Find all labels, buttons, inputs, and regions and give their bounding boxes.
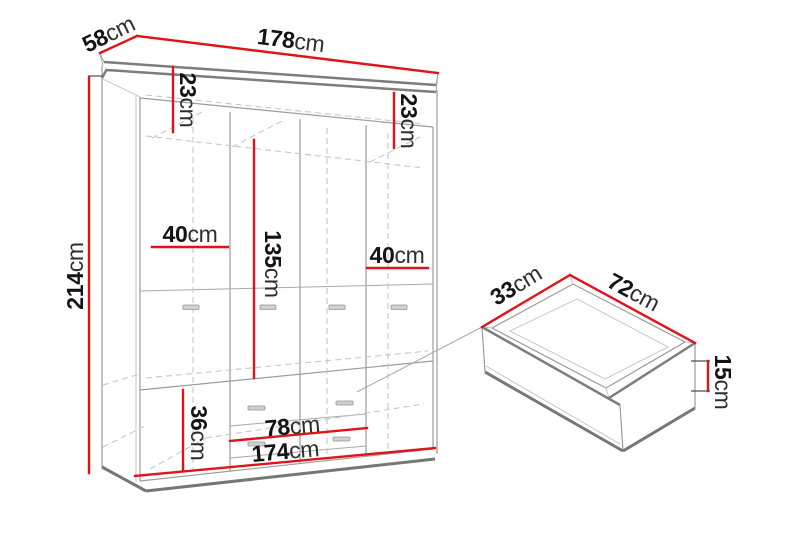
- drawer-handle-top-left: [248, 406, 265, 410]
- dim-label-shelf-23-right: 23cm: [396, 93, 422, 148]
- dim-label-drawer-height-15: 15cm: [710, 354, 736, 409]
- door-handle-3: [329, 305, 345, 310]
- dim-label-section-36: 36cm: [186, 405, 212, 460]
- dashed-shelf-line: [146, 136, 424, 168]
- dashed-side-line-1: [103, 426, 145, 447]
- door-handle-2: [260, 305, 276, 310]
- door-handle-1: [183, 305, 199, 310]
- drawer-detail-drawing: 33cm 72cm 15cm: [482, 260, 736, 451]
- dim-label-door-height-135: 135cm: [260, 230, 286, 298]
- drawer-pointer-line: [357, 327, 482, 392]
- dim-label-shelf-23-left: 23cm: [175, 72, 201, 127]
- dim-label-door-40-right: 40cm: [369, 242, 424, 268]
- drawer-handle-bottom-right: [333, 437, 350, 441]
- wardrobe-drawing: 178cm 58cm 214cm 23cm 23cm 40cm 40cm 135…: [62, 10, 438, 491]
- drawer-handle-top-right: [336, 401, 353, 405]
- cornice-left-cap-edge: [102, 69, 107, 78]
- plinth-bottom-edge: [146, 459, 435, 491]
- dim-label-height-214: 214cm: [62, 242, 88, 310]
- dashed-depth-diagonal-2: [232, 120, 284, 147]
- side-panel-top-edge: [103, 79, 140, 97]
- diagram-stage: 178cm 58cm 214cm 23cm 23cm 40cm 40cm 135…: [0, 0, 800, 533]
- furniture-dimension-diagram: 178cm 58cm 214cm 23cm 23cm 40cm 40cm 135…: [0, 0, 800, 533]
- door-handle-4: [391, 305, 407, 310]
- dashed-above-section-line: [146, 351, 428, 378]
- dim-label-door-40-left: 40cm: [162, 221, 217, 247]
- dashed-side-line-2: [103, 374, 140, 385]
